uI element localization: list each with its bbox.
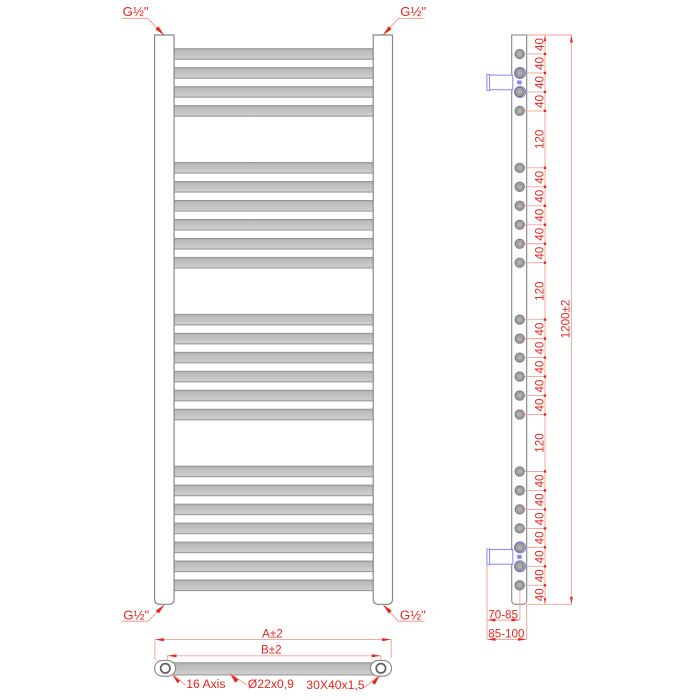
svg-text:85-100: 85-100 bbox=[488, 628, 524, 641]
svg-text:40: 40 bbox=[534, 38, 547, 51]
svg-text:40: 40 bbox=[534, 569, 547, 582]
svg-text:40: 40 bbox=[534, 380, 547, 393]
svg-text:40: 40 bbox=[534, 190, 547, 203]
svg-text:40: 40 bbox=[534, 57, 547, 70]
svg-text:40: 40 bbox=[534, 399, 547, 412]
svg-text:120: 120 bbox=[534, 282, 547, 301]
svg-text:G½": G½" bbox=[400, 4, 426, 19]
svg-text:40: 40 bbox=[534, 512, 547, 525]
svg-text:40: 40 bbox=[534, 361, 547, 374]
svg-text:40: 40 bbox=[534, 228, 547, 241]
svg-text:40: 40 bbox=[534, 76, 547, 89]
svg-text:40: 40 bbox=[534, 531, 547, 544]
svg-text:70-85: 70-85 bbox=[488, 608, 518, 621]
svg-text:40: 40 bbox=[534, 550, 547, 563]
svg-text:B±2: B±2 bbox=[261, 643, 282, 656]
svg-text:120: 120 bbox=[534, 433, 547, 452]
svg-text:G½": G½" bbox=[400, 608, 426, 623]
svg-text:16 Axis: 16 Axis bbox=[186, 677, 225, 691]
svg-text:40: 40 bbox=[534, 95, 547, 108]
svg-text:G½": G½" bbox=[123, 608, 149, 623]
svg-text:40: 40 bbox=[534, 247, 547, 260]
svg-text:40: 40 bbox=[534, 209, 547, 222]
svg-text:Ø22x0,9: Ø22x0,9 bbox=[248, 677, 294, 691]
svg-text:40: 40 bbox=[534, 474, 547, 487]
svg-text:40: 40 bbox=[534, 171, 547, 184]
svg-text:30X40x1,5: 30X40x1,5 bbox=[306, 678, 364, 692]
svg-text:40: 40 bbox=[534, 323, 547, 336]
svg-text:120: 120 bbox=[534, 130, 547, 149]
svg-text:40: 40 bbox=[534, 493, 547, 506]
svg-text:40: 40 bbox=[534, 588, 547, 601]
svg-text:A±2: A±2 bbox=[262, 627, 283, 640]
svg-text:1200±2: 1200±2 bbox=[559, 300, 572, 339]
svg-text:G½": G½" bbox=[123, 4, 149, 19]
svg-text:40: 40 bbox=[534, 342, 547, 355]
